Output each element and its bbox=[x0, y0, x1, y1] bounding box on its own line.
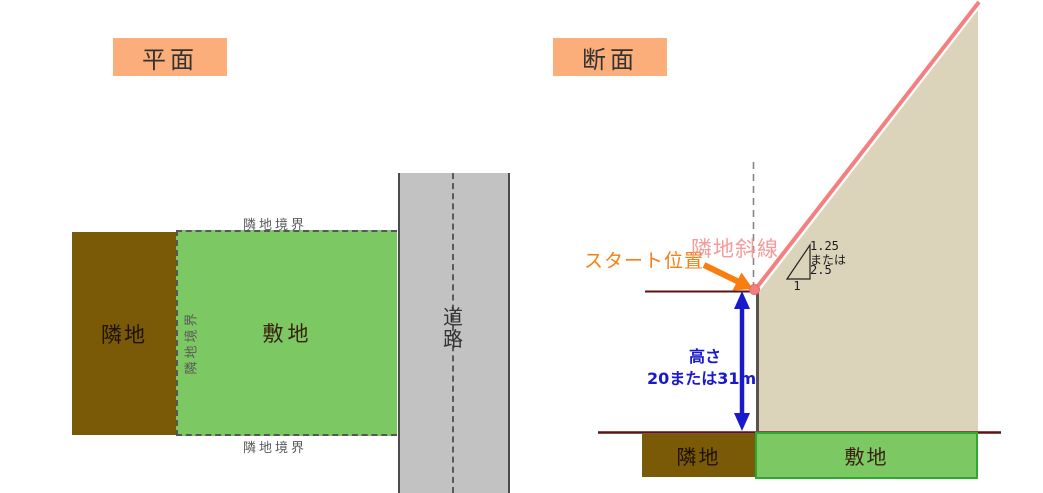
plan-title-box: 平面 bbox=[113, 38, 227, 76]
diagram-canvas: 平面 隣地 敷地 隣地境界 隣地境界 隣地境界 道路 断面 bbox=[0, 0, 1043, 493]
slant-restriction-line bbox=[754, 2, 979, 291]
section-adjacent-land-label: 隣地 bbox=[677, 441, 721, 470]
height-value: 20または31m bbox=[647, 365, 756, 389]
slope-run-label: 1 bbox=[788, 279, 806, 293]
section-title: 断面 bbox=[582, 40, 638, 75]
plan-adjacent-land-rect: 隣地 bbox=[72, 232, 176, 435]
height-arrow-head-top bbox=[734, 291, 750, 309]
slope-triangle bbox=[787, 245, 810, 279]
slant-line-label: 隣地斜線 bbox=[691, 233, 779, 263]
section-site-label: 敷地 bbox=[845, 441, 889, 470]
height-label: 高さ bbox=[689, 343, 721, 367]
section-title-box: 断面 bbox=[553, 38, 667, 76]
buildable-area-shape bbox=[758, 10, 978, 431]
section-site-rect: 敷地 bbox=[755, 432, 978, 479]
start-point-dot bbox=[750, 285, 760, 295]
plan-adjacent-land-label: 隣地 bbox=[101, 319, 147, 349]
height-arrow-head-bottom bbox=[734, 413, 750, 431]
start-arrow-head bbox=[733, 273, 754, 291]
section-adjacent-land-rect: 隣地 bbox=[642, 434, 755, 477]
slope-rise-option2: 2.5 bbox=[810, 263, 832, 277]
start-position-label: スタート位置 bbox=[584, 246, 704, 273]
plan-boundary-bottom-label: 隣地境界 bbox=[243, 437, 307, 456]
plan-site-label: 敷地 bbox=[263, 318, 313, 348]
plan-site-rect: 敷地 bbox=[176, 230, 397, 436]
plan-road-label: 道路 bbox=[442, 306, 464, 350]
plan-boundary-top-label: 隣地境界 bbox=[243, 214, 307, 233]
start-arrow-shaft bbox=[704, 265, 739, 282]
plan-title: 平面 bbox=[142, 40, 198, 75]
plan-boundary-left-label: 隣地境界 bbox=[181, 319, 200, 375]
